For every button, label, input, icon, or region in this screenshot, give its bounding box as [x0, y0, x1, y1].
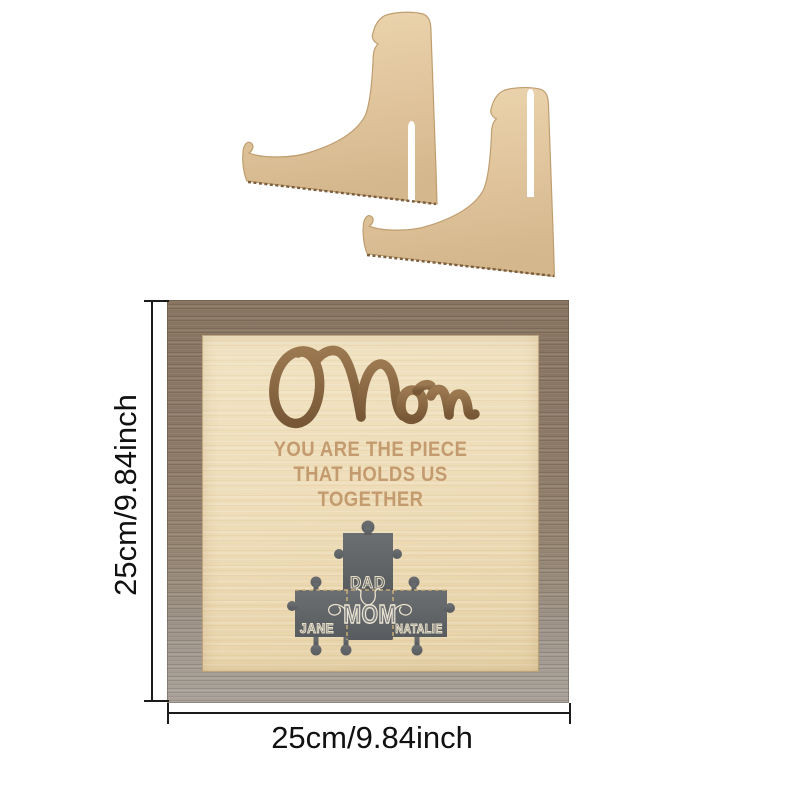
mom-script: Mom [274, 350, 475, 423]
puzzle-knob-mom-bottom-right [412, 645, 423, 656]
puzzle-label-dad: DAD [350, 573, 386, 592]
puzzle-knob-dad-right [392, 549, 402, 559]
easel-stand-left-body [243, 12, 437, 204]
puzzle-label-mom: MOM [343, 600, 396, 630]
puzzle-knob-natalie-right-neck [444, 606, 452, 611]
puzzle-label-natalie: NATALIE [395, 621, 442, 636]
puzzle-knob-mom-bottom-left [341, 645, 352, 656]
easel-stand-right-slot [527, 89, 534, 197]
product-artwork: Mom [0, 0, 800, 800]
puzzle-knob-jane-bottom [311, 645, 322, 656]
puzzle-cluster: DAD MOM JANE NATALIE [287, 521, 455, 656]
puzzle-knob-mom-bottom-right-neck [415, 637, 420, 645]
script-stroke-o-curl [417, 385, 431, 391]
easel-stand-left-slot [408, 121, 415, 203]
product-photo: YOU ARE THE PIECE THAT HOLDS US TOGETHER [0, 0, 800, 800]
puzzle-knob-dad-left [334, 549, 344, 559]
puzzle-knob-jane-bottom-neck [314, 637, 319, 645]
easel-stand-left [243, 12, 437, 204]
script-stroke-m2 [449, 394, 475, 415]
puzzle-knob-jane-left-neck [290, 604, 298, 609]
puzzle-knob-mom-bottom-left-neck [344, 637, 349, 645]
puzzle-knob-dad-neck [365, 527, 372, 535]
puzzle-label-jane: JANE [300, 620, 334, 636]
